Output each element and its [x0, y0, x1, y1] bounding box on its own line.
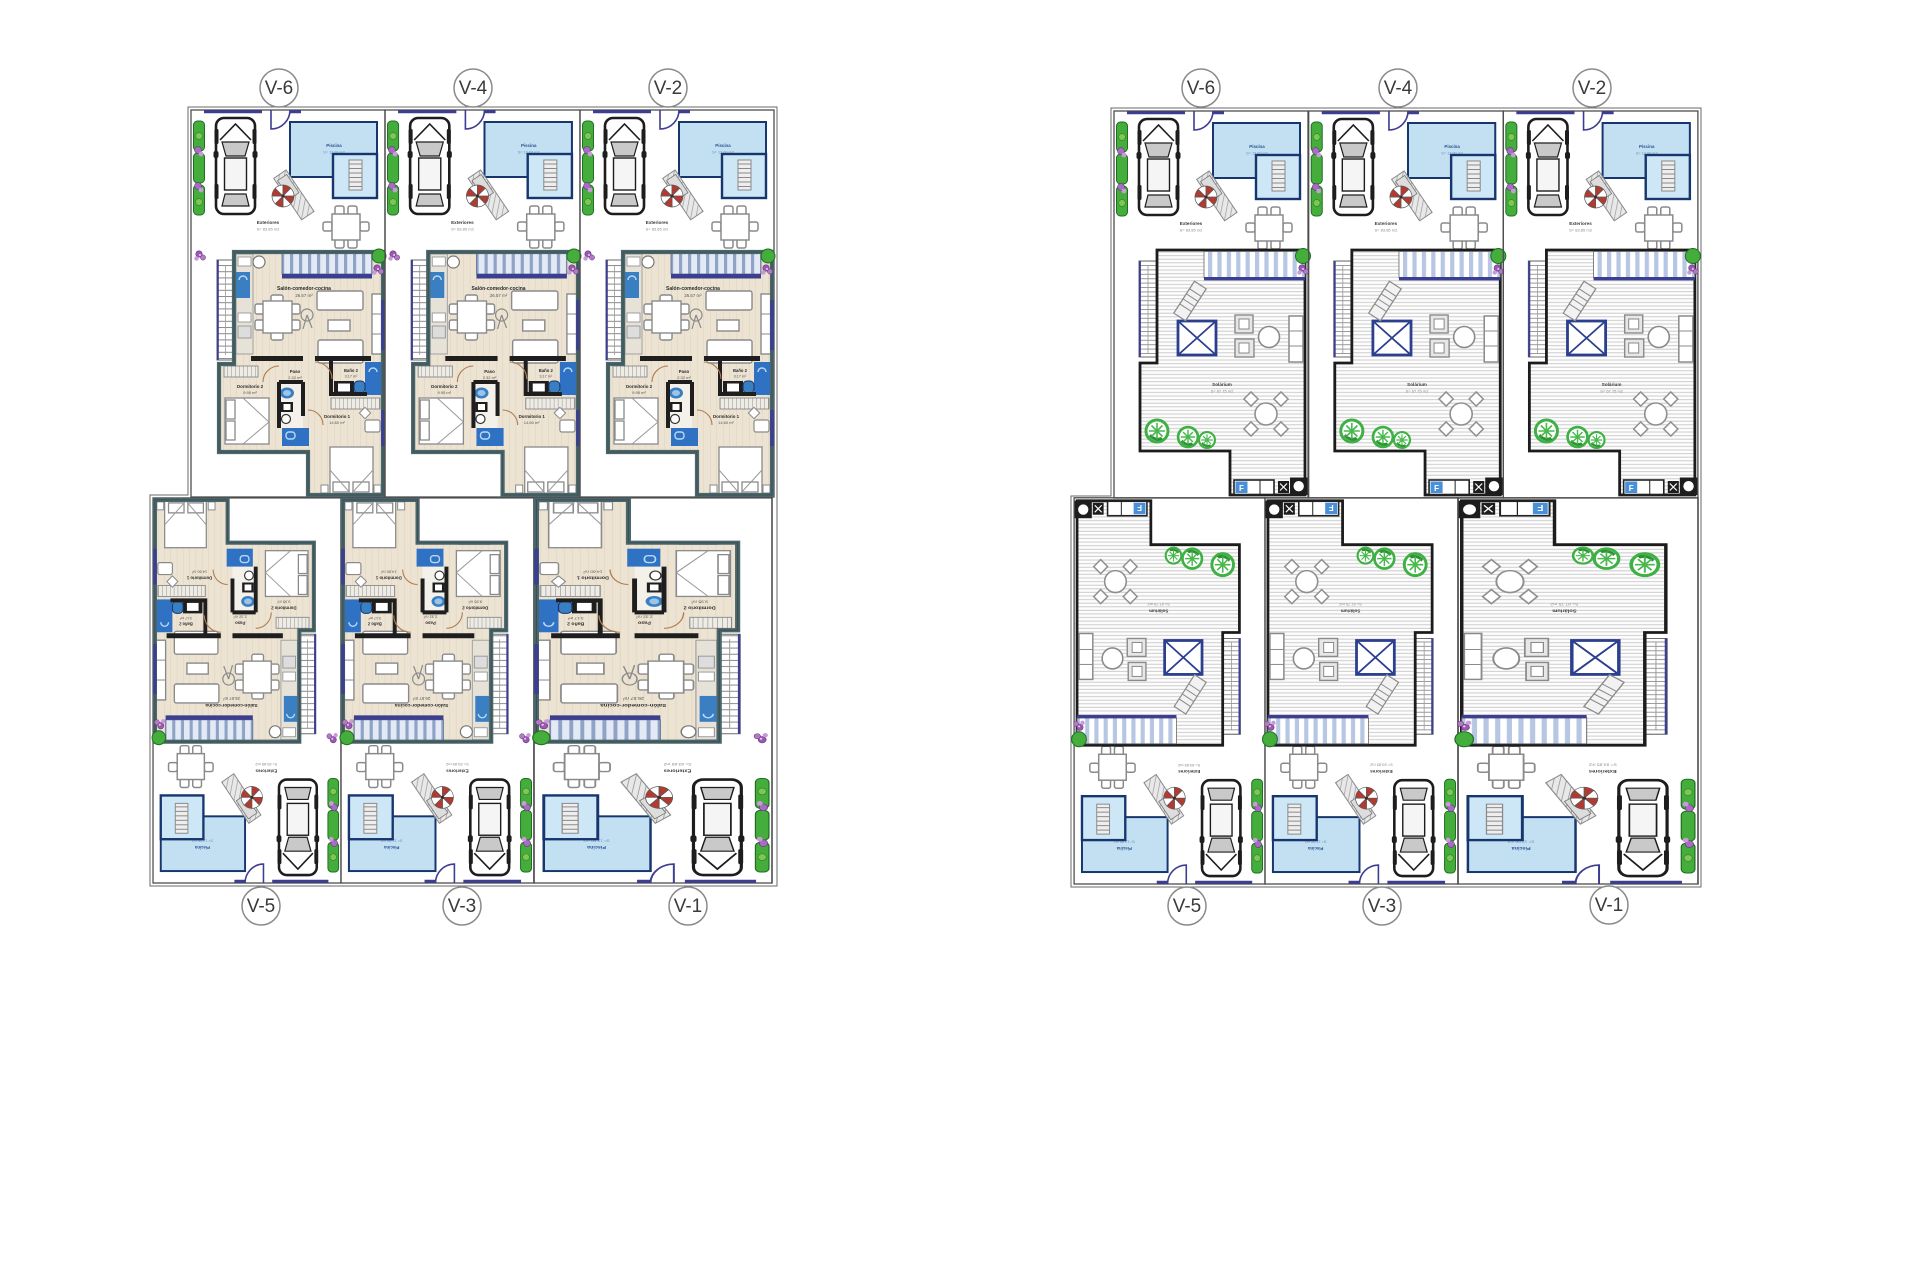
svg-text:V-1: V-1	[1595, 895, 1624, 916]
svg-text:V-1: V-1	[674, 896, 703, 917]
svg-text:V-4: V-4	[459, 78, 488, 99]
svg-text:V-6: V-6	[265, 78, 294, 99]
svg-text:V-3: V-3	[1368, 896, 1397, 917]
svg-text:V-6: V-6	[1187, 78, 1216, 99]
svg-text:V-2: V-2	[1578, 78, 1607, 99]
svg-text:V-4: V-4	[1384, 78, 1413, 99]
svg-text:V-5: V-5	[247, 896, 276, 917]
svg-text:V-5: V-5	[1173, 896, 1202, 917]
svg-text:V-3: V-3	[448, 896, 477, 917]
svg-text:V-2: V-2	[654, 78, 683, 99]
